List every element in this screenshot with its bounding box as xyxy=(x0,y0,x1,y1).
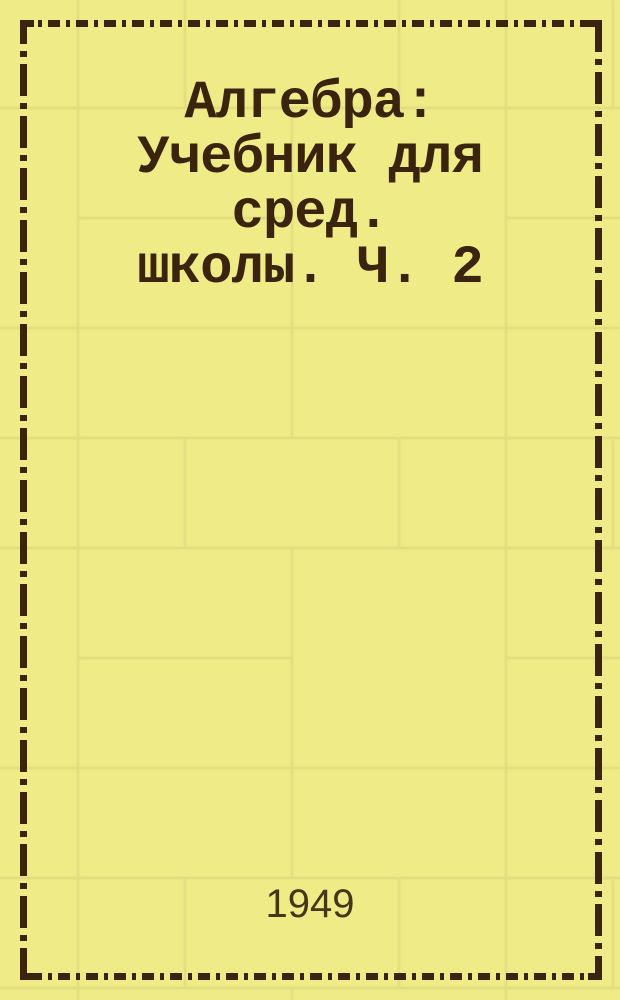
book-title-line: Алгебра: xyxy=(24,76,596,131)
publication-year: 1949 xyxy=(0,884,620,924)
book-title-line: сред. xyxy=(24,186,596,241)
book-title: Алгебра: Учебник для сред. школы. Ч. 2 xyxy=(24,76,596,296)
book-title-line: школы. Ч. 2 xyxy=(24,241,596,296)
book-title-line: Учебник для xyxy=(24,131,596,186)
book-cover-placeholder: Алгебра: Учебник для сред. школы. Ч. 2 1… xyxy=(0,0,620,1000)
